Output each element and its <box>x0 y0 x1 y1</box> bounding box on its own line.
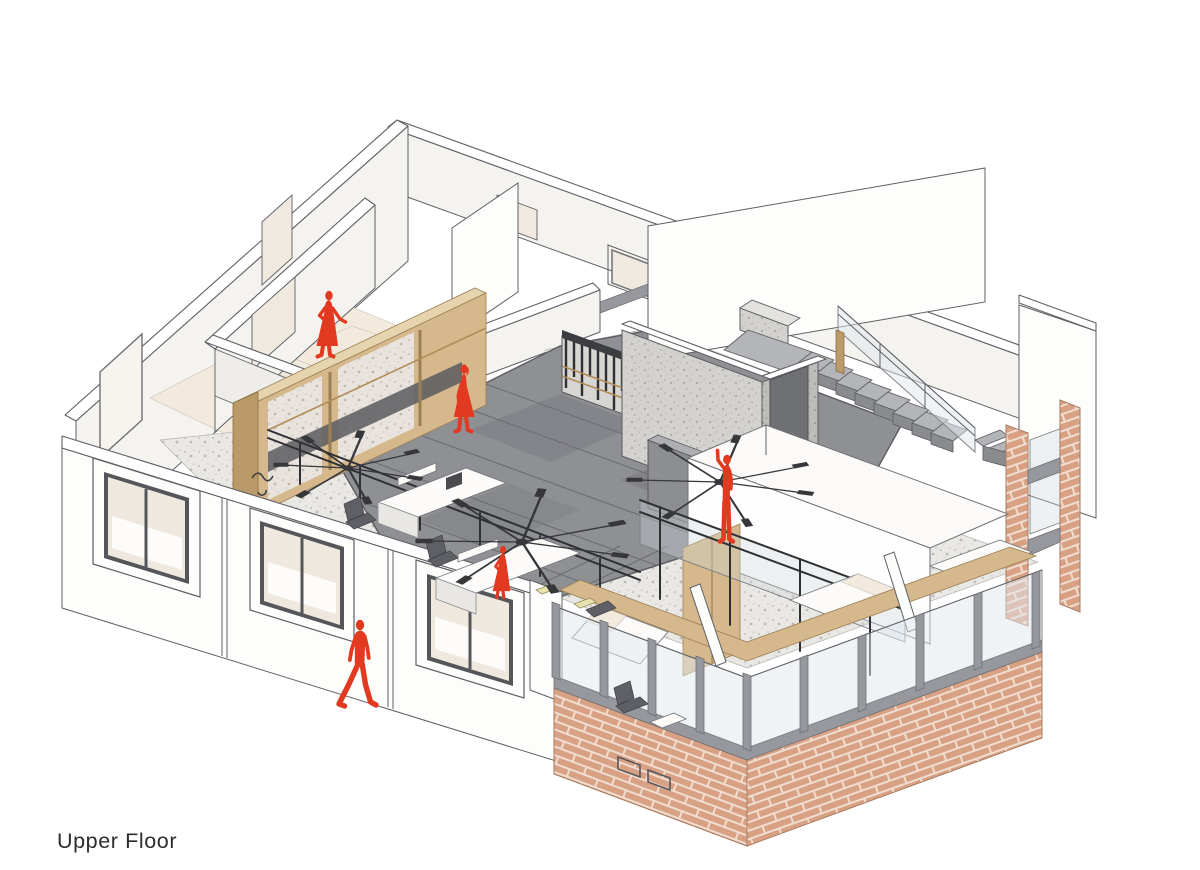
floor-label: Upper Floor <box>57 829 177 853</box>
brass-post <box>836 330 844 374</box>
axonometric-floor-plan: Upper Floor <box>0 0 1200 870</box>
brick-pier <box>1060 400 1080 612</box>
east-end <box>1006 295 1096 626</box>
architectural-drawing-page: Upper Floor <box>0 0 1200 870</box>
